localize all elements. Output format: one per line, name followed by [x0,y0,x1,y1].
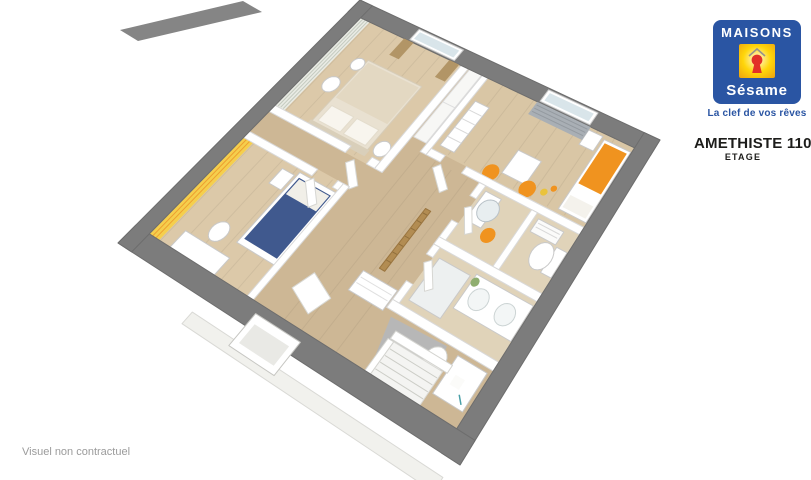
logo-box: MAISONS Sésame [713,20,801,104]
door-bathroom [424,260,433,291]
floor-label: ETAGE [700,152,786,162]
nw-eave-strip [120,1,262,41]
logo-brand-bottom: Sésame [726,83,788,98]
disclaimer-text: Visuel non contractuel [22,446,130,458]
floor-plan-3d [0,0,811,480]
logo-tagline: La clef de vos rêves [705,108,809,119]
page: MAISONS Sésame L [0,0,811,480]
logo-brand-top: MAISONS [721,26,793,39]
keyhole-icon [739,44,775,78]
door-shower-room [464,206,472,234]
maisons-sesame-logo: MAISONS Sésame L [705,20,809,119]
model-name: AMETHISTE 110 GI [694,135,811,152]
